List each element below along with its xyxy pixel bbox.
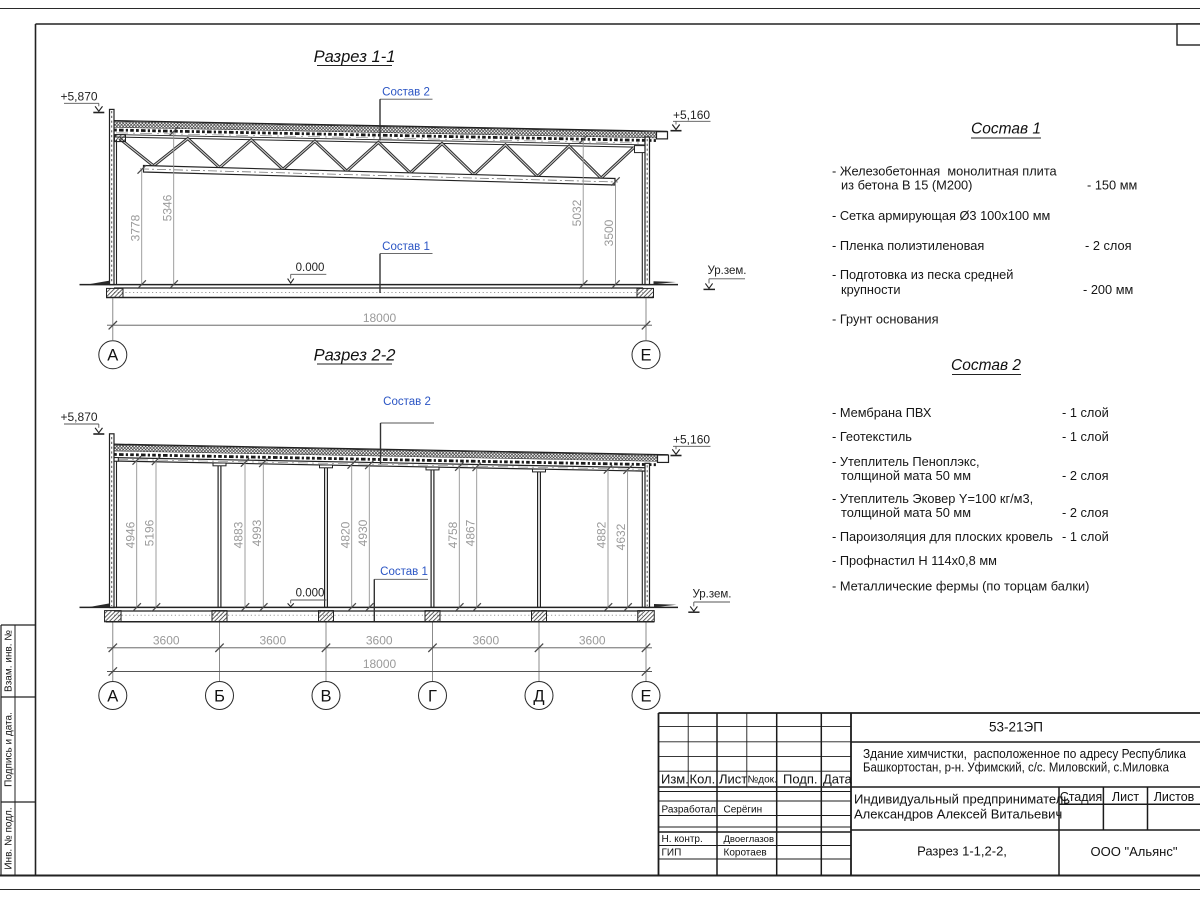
svg-text:Е: Е (640, 347, 651, 365)
svg-text:Дата: Дата (823, 772, 853, 787)
svg-text:Состав 2: Состав 2 (382, 87, 430, 99)
svg-text:Подп.: Подп. (783, 772, 818, 787)
svg-text:0.000: 0.000 (296, 588, 325, 600)
svg-text:Н. контр.: Н. контр. (662, 834, 703, 845)
svg-text:4867: 4867 (463, 519, 477, 546)
svg-text:крупности: крупности (841, 282, 901, 297)
svg-text:4758: 4758 (446, 521, 460, 548)
svg-text:Состав 2: Состав 2 (383, 396, 431, 408)
svg-text:Ур.зем.: Ур.зем. (707, 265, 746, 277)
svg-text:4882: 4882 (595, 521, 609, 548)
svg-text:- Пленка полиэтиленовая: - Пленка полиэтиленовая (832, 238, 984, 253)
svg-text:- Подготовка из песка средней: - Подготовка из песка средней (832, 267, 1013, 282)
svg-text:Александров Алексей Витальевич: Александров Алексей Витальевич (854, 807, 1062, 822)
svg-text:- 1 слой: - 1 слой (1062, 429, 1109, 444)
svg-text:- Геотекстиль: - Геотекстиль (832, 429, 912, 444)
svg-text:Двоеглазов: Двоеглазов (724, 834, 775, 845)
svg-text:ГИП: ГИП (662, 848, 682, 859)
svg-text:5196: 5196 (143, 519, 157, 546)
svg-text:4930: 4930 (356, 519, 370, 546)
svg-text:Лист: Лист (1112, 790, 1139, 804)
svg-text:Изм.: Изм. (661, 772, 689, 787)
svg-text:+5,870: +5,870 (61, 90, 98, 104)
svg-text:Состав 1: Состав 1 (380, 566, 428, 578)
svg-text:Состав 1: Состав 1 (382, 241, 430, 253)
svg-text:+5,160: +5,160 (673, 108, 710, 122)
svg-text:- Мембрана ПВХ: - Мембрана ПВХ (832, 405, 932, 420)
svg-text:4993: 4993 (250, 519, 264, 546)
svg-text:- Профнастил Н 114х0,8 мм: - Профнастил Н 114х0,8 мм (832, 553, 997, 568)
svg-text:- 1 слой: - 1 слой (1062, 529, 1109, 544)
svg-text:- 2 слоя: - 2 слоя (1085, 238, 1132, 253)
svg-text:толщиной мата 50 мм: толщиной мата 50 мм (841, 468, 971, 483)
svg-text:Разрез 1-1,2-2,: Разрез 1-1,2-2, (917, 844, 1007, 859)
svg-text:из бетона В 15 (М200): из бетона В 15 (М200) (841, 178, 972, 193)
svg-text:Д: Д (533, 687, 544, 705)
svg-text:- 150 мм: - 150 мм (1087, 178, 1137, 193)
svg-text:- 200 мм: - 200 мм (1083, 282, 1133, 297)
svg-text:- Сетка армирующая Ø3 100x100: - Сетка армирующая Ø3 100x100 мм (832, 208, 1050, 223)
svg-text:Индивидуальный предприниматель: Индивидуальный предприниматель (854, 792, 1070, 807)
svg-text:Подпись и дата.: Подпись и дата. (4, 712, 15, 787)
svg-text:толщиной мата 50 мм: толщиной мата 50 мм (841, 505, 971, 520)
svg-text:+5,160: +5,160 (673, 433, 710, 447)
svg-text:5032: 5032 (570, 199, 584, 226)
svg-text:3600: 3600 (153, 633, 180, 647)
svg-text:- Утеплитель Пеноплэкс,: - Утеплитель Пеноплэкс, (832, 454, 980, 469)
svg-text:Состав 2: Состав 2 (951, 357, 1021, 374)
svg-text:Башкортостан, р-н. Уфимский, с: Башкортостан, р-н. Уфимский, с/с. Миловс… (863, 759, 1170, 774)
svg-text:Листов: Листов (1154, 790, 1195, 804)
svg-text:- Пароизоляция для плоских кро: - Пароизоляция для плоских кровель (832, 529, 1053, 544)
svg-text:А: А (107, 347, 118, 365)
svg-text:Кол.: Кол. (690, 772, 716, 787)
svg-text:- Железобетонная монолитная п: - Железобетонная монолитная плита (832, 164, 1058, 179)
svg-text:№док.: №док. (748, 775, 777, 786)
svg-text:4883: 4883 (232, 521, 246, 548)
svg-text:3600: 3600 (259, 633, 286, 647)
svg-text:- Утеплитель Эковер Y=100 кг/м: - Утеплитель Эковер Y=100 кг/м3, (832, 491, 1033, 506)
svg-text:+5,870: +5,870 (61, 410, 98, 424)
svg-text:Взам. инв. №: Взам. инв. № (4, 630, 15, 692)
svg-text:4632: 4632 (614, 523, 628, 550)
svg-text:- Грунт основания: - Грунт основания (832, 312, 939, 327)
svg-text:3500: 3500 (602, 219, 616, 246)
svg-text:3778: 3778 (128, 214, 142, 241)
svg-text:- 1 слой: - 1 слой (1062, 405, 1109, 420)
svg-text:Коротаев: Коротаев (724, 848, 767, 859)
svg-text:Ур.зем.: Ур.зем. (692, 589, 731, 601)
svg-text:3600: 3600 (366, 633, 393, 647)
svg-text:Стадия: Стадия (1060, 790, 1103, 804)
svg-text:Г: Г (428, 687, 437, 705)
svg-text:ООО "Альянс": ООО "Альянс" (1091, 844, 1178, 859)
svg-text:18000: 18000 (363, 311, 397, 325)
svg-text:4820: 4820 (338, 521, 352, 548)
svg-text:0.000: 0.000 (296, 262, 325, 274)
svg-text:Разрез 2-2: Разрез 2-2 (314, 347, 396, 365)
svg-text:Разработал: Разработал (662, 803, 717, 815)
svg-text:- 2 слоя: - 2 слоя (1062, 468, 1109, 483)
svg-text:Состав 1: Состав 1 (971, 121, 1041, 138)
svg-text:4946: 4946 (123, 521, 137, 548)
svg-text:3600: 3600 (579, 633, 606, 647)
svg-text:- Металлические фермы (по торц: - Металлические фермы (по торцам балки) (832, 579, 1089, 594)
svg-text:Разрез 1-1: Разрез 1-1 (314, 48, 396, 66)
svg-text:А: А (107, 687, 118, 705)
svg-text:Б: Б (214, 687, 225, 705)
svg-text:Инв. № подл.: Инв. № подл. (4, 807, 15, 869)
svg-text:53-21ЭП: 53-21ЭП (989, 720, 1043, 735)
svg-text:Е: Е (640, 687, 651, 705)
svg-text:3600: 3600 (472, 633, 499, 647)
svg-text:5346: 5346 (160, 194, 174, 221)
svg-text:- 2 слоя: - 2 слоя (1062, 505, 1109, 520)
svg-text:Серёгин: Серёгин (724, 804, 763, 815)
svg-text:18000: 18000 (363, 657, 397, 671)
svg-text:В: В (320, 687, 331, 705)
svg-text:Лист: Лист (719, 772, 747, 787)
